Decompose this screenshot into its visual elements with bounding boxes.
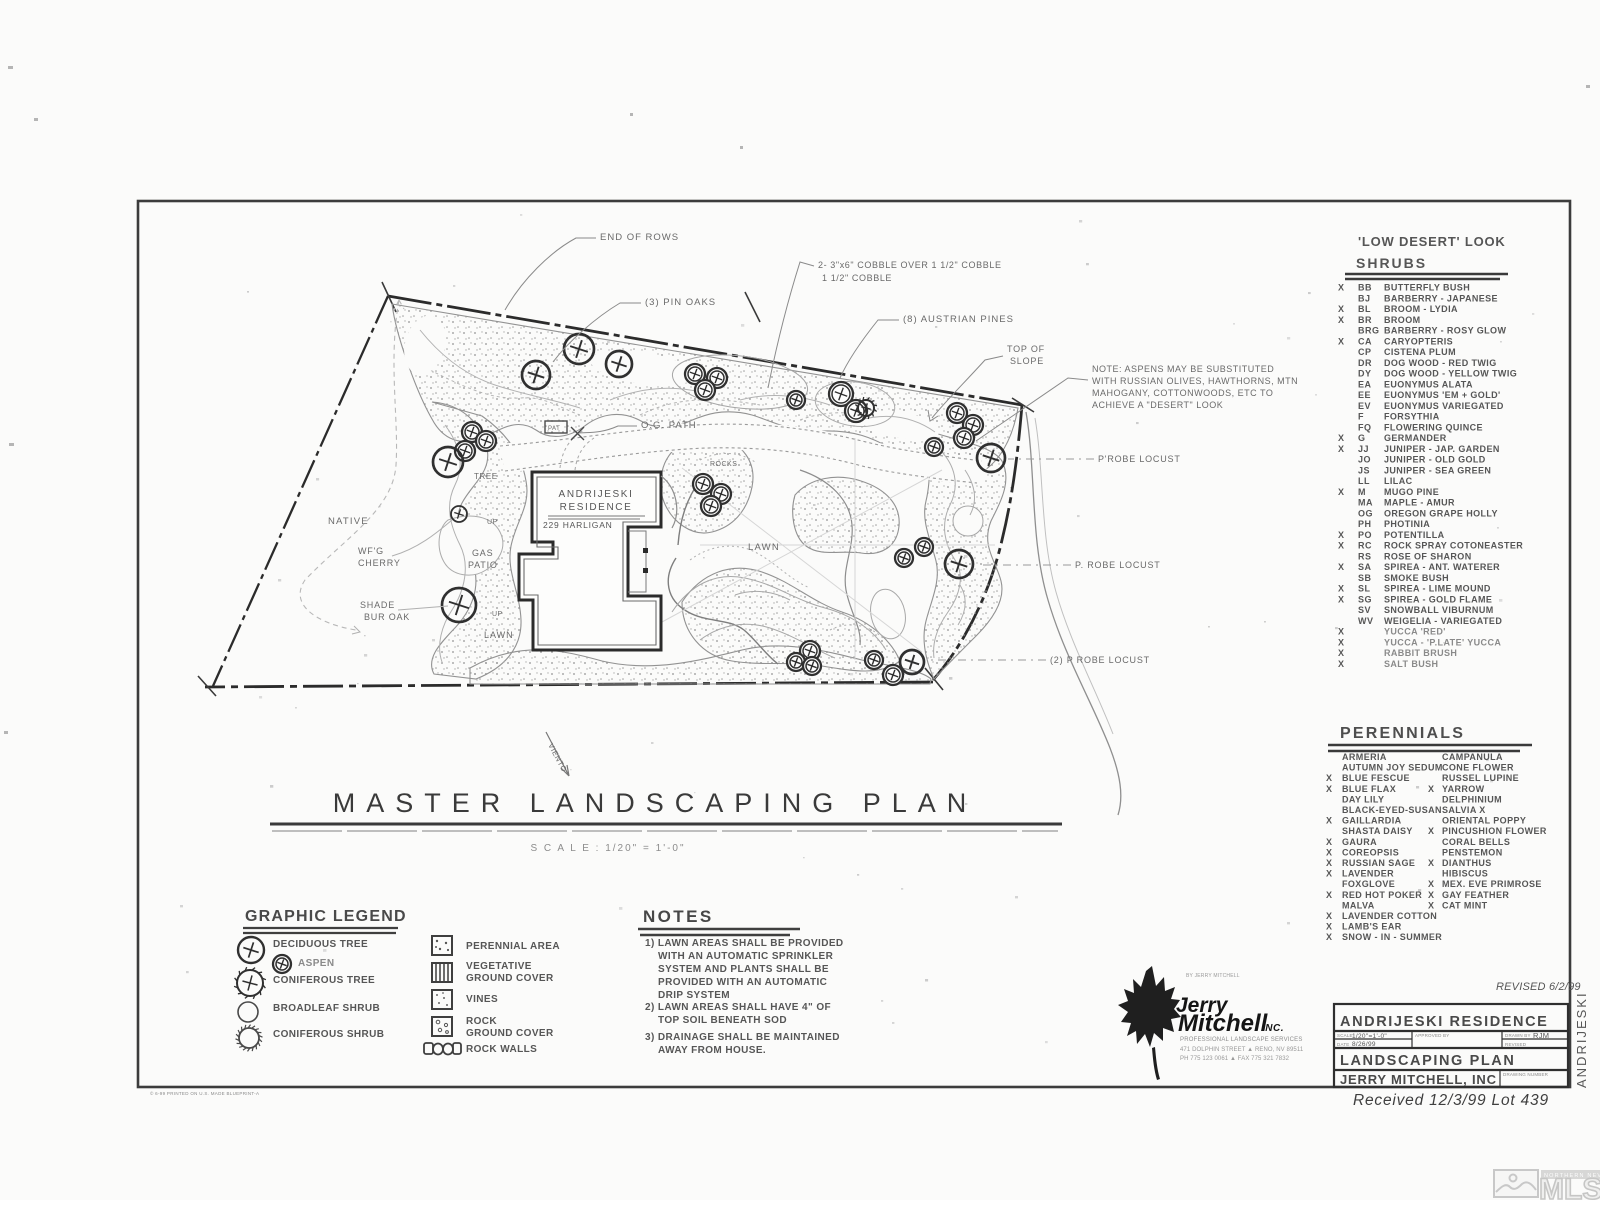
svg-text:MALVA: MALVA bbox=[1342, 900, 1375, 910]
svg-text:PINCUSHION FLOWER: PINCUSHION FLOWER bbox=[1442, 826, 1547, 836]
svg-text:X: X bbox=[1428, 858, 1434, 868]
svg-text:OG: OG bbox=[1358, 508, 1373, 518]
svg-text:FOXGLOVE: FOXGLOVE bbox=[1342, 879, 1395, 889]
svg-text:DIANTHUS: DIANTHUS bbox=[1442, 858, 1492, 868]
svg-text:BRG: BRG bbox=[1358, 326, 1380, 336]
svg-text:M: M bbox=[1358, 487, 1366, 497]
svg-text:X: X bbox=[1338, 530, 1344, 540]
svg-text:RUSSIAN SAGE: RUSSIAN SAGE bbox=[1342, 858, 1415, 868]
svg-text:RUSSEL LUPINE: RUSSEL LUPINE bbox=[1442, 773, 1519, 783]
svg-text:BLUE FLAX: BLUE FLAX bbox=[1342, 784, 1396, 794]
svg-text:BROADLEAF SHRUB: BROADLEAF SHRUB bbox=[273, 1003, 380, 1014]
svg-text:GRAPHIC LEGEND: GRAPHIC LEGEND bbox=[245, 908, 407, 925]
svg-text:SHRUBS: SHRUBS bbox=[1356, 255, 1427, 271]
svg-text:SMOKE BUSH: SMOKE BUSH bbox=[1384, 573, 1449, 583]
svg-text:UP: UP bbox=[492, 611, 503, 618]
svg-text:1/20"=1'-0": 1/20"=1'-0" bbox=[1352, 1033, 1387, 1040]
svg-text:X: X bbox=[1338, 336, 1344, 346]
svg-text:MUGO PINE: MUGO PINE bbox=[1384, 487, 1439, 497]
svg-text:BY JERRY MITCHELL: BY JERRY MITCHELL bbox=[1186, 973, 1240, 979]
svg-text:Mitchell: Mitchell bbox=[1178, 1010, 1269, 1037]
svg-text:DOG WOOD - RED TWIG: DOG WOOD - RED TWIG bbox=[1384, 358, 1497, 368]
svg-text:ROCK WALLS: ROCK WALLS bbox=[466, 1044, 537, 1055]
svg-text:ROCK: ROCK bbox=[466, 1016, 497, 1027]
svg-text:DELPHINIUM: DELPHINIUM bbox=[1442, 794, 1502, 804]
svg-text:MAPLE - AMUR: MAPLE - AMUR bbox=[1384, 498, 1455, 508]
svg-text:X: X bbox=[1326, 773, 1332, 783]
svg-text:TOP SOIL BENEATH SOD: TOP SOIL BENEATH SOD bbox=[658, 1015, 787, 1026]
svg-text:WITH RUSSIAN OLIVES, HAWTHORNS: WITH RUSSIAN OLIVES, HAWTHORNS, MTN bbox=[1092, 376, 1298, 386]
svg-text:2) LAWN AREAS SHALL HAVE 4" OF: 2) LAWN AREAS SHALL HAVE 4" OF bbox=[645, 1002, 831, 1013]
svg-text:DAY LILY: DAY LILY bbox=[1342, 794, 1384, 804]
svg-text:EV: EV bbox=[1358, 401, 1371, 411]
svg-text:POTENTILLA: POTENTILLA bbox=[1384, 530, 1445, 540]
svg-text:X: X bbox=[1338, 541, 1344, 551]
svg-text:PERENNIAL AREA: PERENNIAL AREA bbox=[466, 941, 560, 952]
svg-text:SB: SB bbox=[1358, 573, 1372, 583]
svg-text:X: X bbox=[1326, 784, 1332, 794]
svg-text:SALT BUSH: SALT BUSH bbox=[1384, 659, 1438, 669]
svg-text:EE: EE bbox=[1358, 390, 1371, 400]
svg-text:ROCK SPRAY COTONEASTER: ROCK SPRAY COTONEASTER bbox=[1384, 541, 1523, 551]
svg-text:P'ROBE LOCUST: P'ROBE LOCUST bbox=[1098, 454, 1181, 464]
svg-text:CARYOPTERIS: CARYOPTERIS bbox=[1384, 336, 1453, 346]
svg-text:RESIDENCE: RESIDENCE bbox=[560, 502, 633, 513]
svg-text:JERRY MITCHELL, INC: JERRY MITCHELL, INC bbox=[1340, 1072, 1497, 1087]
svg-text:X: X bbox=[1338, 648, 1344, 658]
svg-text:X: X bbox=[1338, 444, 1344, 454]
svg-text:X: X bbox=[1326, 816, 1332, 826]
svg-text:3) DRAINAGE SHALL BE MAINTAINE: 3) DRAINAGE SHALL BE MAINTAINED bbox=[645, 1032, 840, 1043]
svg-text:CISTENA PLUM: CISTENA PLUM bbox=[1384, 347, 1456, 357]
svg-text:CHERRY: CHERRY bbox=[358, 558, 401, 568]
svg-text:SHADE: SHADE bbox=[360, 600, 395, 610]
svg-text:PHOTINIA: PHOTINIA bbox=[1384, 519, 1430, 529]
svg-text:ROSE OF SHARON: ROSE OF SHARON bbox=[1384, 551, 1472, 561]
svg-text:PENSTEMON: PENSTEMON bbox=[1442, 847, 1503, 857]
svg-text:MLS: MLS bbox=[1539, 1173, 1600, 1200]
svg-text:JJ: JJ bbox=[1358, 444, 1369, 454]
svg-text:VINES: VINES bbox=[466, 994, 498, 1005]
svg-text:SALVIA X: SALVIA X bbox=[1442, 805, 1486, 815]
svg-text:SL: SL bbox=[1358, 584, 1371, 594]
svg-text:2- 3"x6" COBBLE OVER 1 1/2" CO: 2- 3"x6" COBBLE OVER 1 1/2" COBBLE bbox=[818, 260, 1002, 270]
svg-text:TOP OF: TOP OF bbox=[1007, 344, 1045, 354]
svg-text:RED HOT POKER: RED HOT POKER bbox=[1342, 890, 1422, 900]
svg-text:PH: PH bbox=[1358, 519, 1372, 529]
svg-text:REVISED 6/2/99: REVISED 6/2/99 bbox=[1496, 981, 1581, 993]
svg-text:SLOPE: SLOPE bbox=[1010, 356, 1044, 366]
svg-text:ORIENTAL POPPY: ORIENTAL POPPY bbox=[1442, 816, 1526, 826]
svg-text:CA: CA bbox=[1358, 336, 1372, 346]
svg-text:BLUE FESCUE: BLUE FESCUE bbox=[1342, 773, 1410, 783]
svg-text:PAT: PAT bbox=[548, 426, 560, 432]
svg-text:F: F bbox=[1358, 412, 1364, 422]
svg-text:1 1/2" COBBLE: 1 1/2" COBBLE bbox=[822, 273, 892, 283]
svg-text:SNOW - IN - SUMMER: SNOW - IN - SUMMER bbox=[1342, 932, 1442, 942]
svg-text:ANDRIJESKI: ANDRIJESKI bbox=[559, 489, 634, 500]
svg-text:BROOM - LYDIA: BROOM - LYDIA bbox=[1384, 304, 1458, 314]
svg-text:X: X bbox=[1338, 637, 1344, 647]
svg-text:LILAC: LILAC bbox=[1384, 476, 1413, 486]
svg-text:ANDRIJESKI: ANDRIJESKI bbox=[1574, 991, 1589, 1088]
svg-text:X: X bbox=[1338, 433, 1344, 443]
svg-text:SPIREA - LIME MOUND: SPIREA - LIME MOUND bbox=[1384, 584, 1491, 594]
svg-text:229 HARLIGAN: 229 HARLIGAN bbox=[543, 520, 613, 530]
svg-text:FQ: FQ bbox=[1358, 422, 1372, 432]
svg-text:ROCKS: ROCKS bbox=[710, 461, 737, 468]
svg-text:X: X bbox=[1326, 858, 1332, 868]
svg-text:X: X bbox=[1326, 932, 1332, 942]
svg-text:X: X bbox=[1326, 837, 1332, 847]
svg-text:MASTER LANDSCAPING PLAN: MASTER LANDSCAPING PLAN bbox=[333, 788, 978, 818]
svg-text:X: X bbox=[1338, 487, 1344, 497]
svg-text:JUNIPER - JAP. GARDEN: JUNIPER - JAP. GARDEN bbox=[1384, 444, 1500, 454]
svg-text:UP: UP bbox=[487, 519, 498, 526]
svg-text:WITH AN AUTOMATIC SPRINKLER: WITH AN AUTOMATIC SPRINKLER bbox=[658, 951, 834, 962]
svg-text:SV: SV bbox=[1358, 605, 1371, 615]
svg-text:S C A L E : 1/20" = 1'-0": S C A L E : 1/20" = 1'-0" bbox=[530, 843, 685, 854]
svg-text:DRAWING NUMBER: DRAWING NUMBER bbox=[1503, 1072, 1549, 1077]
svg-text:PROVIDED WITH AN AUTOMATIC: PROVIDED WITH AN AUTOMATIC bbox=[658, 977, 827, 988]
svg-text:GAURA: GAURA bbox=[1342, 837, 1377, 847]
svg-text:GROUND COVER: GROUND COVER bbox=[466, 973, 554, 984]
svg-text:BUTTERFLY BUSH: BUTTERFLY BUSH bbox=[1384, 283, 1470, 293]
svg-text:BB: BB bbox=[1358, 283, 1372, 293]
svg-text:AWAY FROM HOUSE.: AWAY FROM HOUSE. bbox=[658, 1045, 766, 1056]
svg-text:CORAL BELLS: CORAL BELLS bbox=[1442, 837, 1510, 847]
svg-text:X: X bbox=[1326, 869, 1332, 879]
svg-text:PATIO: PATIO bbox=[468, 560, 498, 570]
svg-text:BROOM: BROOM bbox=[1384, 315, 1421, 325]
svg-text:DR: DR bbox=[1358, 358, 1372, 368]
svg-text:X: X bbox=[1326, 922, 1332, 932]
svg-text:VEGETATIVE: VEGETATIVE bbox=[466, 961, 532, 972]
svg-text:BARBERRY - JAPANESE: BARBERRY - JAPANESE bbox=[1384, 293, 1498, 303]
svg-text:TREE: TREE bbox=[474, 472, 498, 481]
svg-text:SNOWBALL VIBURNUM: SNOWBALL VIBURNUM bbox=[1384, 605, 1494, 615]
svg-text:O.G. PATH: O.G. PATH bbox=[641, 420, 697, 431]
svg-text:JUNIPER - OLD GOLD: JUNIPER - OLD GOLD bbox=[1384, 455, 1486, 465]
svg-text:ASPEN: ASPEN bbox=[298, 958, 334, 969]
svg-text:RJM: RJM bbox=[1533, 1031, 1549, 1040]
svg-text:'LOW DESERT' LOOK: 'LOW DESERT' LOOK bbox=[1358, 234, 1506, 249]
svg-text:SA: SA bbox=[1358, 562, 1372, 572]
svg-text:WV: WV bbox=[1358, 616, 1374, 626]
svg-text:BUR OAK: BUR OAK bbox=[364, 612, 410, 622]
svg-text:DOG WOOD - YELLOW TWIG: DOG WOOD - YELLOW TWIG bbox=[1384, 369, 1517, 379]
svg-text:X: X bbox=[1428, 826, 1434, 836]
svg-text:BL: BL bbox=[1358, 304, 1371, 314]
svg-text:PERENNIALS: PERENNIALS bbox=[1340, 725, 1465, 742]
svg-text:X: X bbox=[1338, 584, 1344, 594]
svg-text:© 6-99 PRINTED ON U.S. MADE: © 6-99 PRINTED ON U.S. MADE BLUEPRINT-A bbox=[150, 1090, 259, 1096]
svg-text:LAWN: LAWN bbox=[484, 630, 514, 640]
svg-text:X: X bbox=[1428, 784, 1434, 794]
svg-text:YUCCA 'RED': YUCCA 'RED' bbox=[1384, 627, 1446, 637]
svg-text:FORSYTHIA: FORSYTHIA bbox=[1384, 412, 1440, 422]
svg-text:CONIFEROUS SHRUB: CONIFEROUS SHRUB bbox=[273, 1029, 384, 1040]
svg-text:NOTES: NOTES bbox=[643, 907, 714, 926]
svg-text:X: X bbox=[1326, 911, 1332, 921]
svg-text:471 DOLPHIN STREET ▲ RENO, NV: 471 DOLPHIN STREET ▲ RENO, NV 89511 bbox=[1180, 1047, 1304, 1053]
svg-text:YARROW: YARROW bbox=[1442, 784, 1485, 794]
svg-text:DRAWN BY: DRAWN BY bbox=[1505, 1033, 1531, 1038]
svg-text:X: X bbox=[1338, 594, 1344, 604]
svg-text:GAS: GAS bbox=[472, 548, 493, 558]
svg-text:GROUND COVER: GROUND COVER bbox=[466, 1028, 554, 1039]
svg-text:PROFESSIONAL LANDSCAPE SERVICE: PROFESSIONAL LANDSCAPE SERVICES bbox=[1180, 1037, 1303, 1043]
svg-text:BJ: BJ bbox=[1358, 293, 1371, 303]
svg-text:EUONYMUS ALATA: EUONYMUS ALATA bbox=[1384, 379, 1473, 389]
svg-text:G: G bbox=[1358, 433, 1366, 443]
svg-text:DECIDUOUS TREE: DECIDUOUS TREE bbox=[273, 939, 368, 950]
svg-text:END OF ROWS: END OF ROWS bbox=[600, 232, 679, 243]
svg-text:ACHIEVE A "DESERT" LOOK: ACHIEVE A "DESERT" LOOK bbox=[1092, 400, 1223, 410]
svg-text:CONIFEROUS TREE: CONIFEROUS TREE bbox=[273, 975, 375, 986]
svg-text:INC.: INC. bbox=[1262, 1023, 1284, 1034]
svg-text:GAY FEATHER: GAY FEATHER bbox=[1442, 890, 1509, 900]
svg-text:X: X bbox=[1338, 283, 1344, 293]
svg-text:JO: JO bbox=[1358, 455, 1371, 465]
svg-text:JS: JS bbox=[1358, 465, 1370, 475]
svg-text:MEX. EVE PRIMROSE: MEX. EVE PRIMROSE bbox=[1442, 879, 1542, 889]
svg-text:BR: BR bbox=[1358, 315, 1372, 325]
svg-text:EUONYMUS 'EM + GOLD': EUONYMUS 'EM + GOLD' bbox=[1384, 390, 1501, 400]
svg-text:SPIREA - ANT. WATERER: SPIREA - ANT. WATERER bbox=[1384, 562, 1500, 572]
svg-text:X: X bbox=[1428, 900, 1434, 910]
svg-text:SPIREA - GOLD FLAME: SPIREA - GOLD FLAME bbox=[1384, 594, 1492, 604]
svg-text:X: X bbox=[1338, 627, 1344, 637]
svg-text:LAVENDER: LAVENDER bbox=[1342, 869, 1394, 879]
svg-text:GAILLARDIA: GAILLARDIA bbox=[1342, 816, 1402, 826]
svg-text:JUNIPER - SEA GREEN: JUNIPER - SEA GREEN bbox=[1384, 465, 1491, 475]
svg-text:REVISED: REVISED bbox=[1505, 1042, 1527, 1047]
svg-text:RABBIT BRUSH: RABBIT BRUSH bbox=[1384, 648, 1457, 658]
svg-text:LANDSCAPING PLAN: LANDSCAPING PLAN bbox=[1340, 1053, 1515, 1069]
svg-text:X: X bbox=[1338, 659, 1344, 669]
svg-text:8/26/99: 8/26/99 bbox=[1352, 1041, 1376, 1048]
svg-text:(8) AUSTRIAN PINES: (8) AUSTRIAN PINES bbox=[903, 314, 1014, 325]
svg-text:EUONYMUS VARIEGATED: EUONYMUS VARIEGATED bbox=[1384, 401, 1504, 411]
svg-text:AUTUMN JOY SEDUM: AUTUMN JOY SEDUM bbox=[1342, 763, 1443, 773]
svg-text:OREGON GRAPE HOLLY: OREGON GRAPE HOLLY bbox=[1384, 508, 1498, 518]
svg-text:EA: EA bbox=[1358, 379, 1372, 389]
svg-text:CP: CP bbox=[1358, 347, 1372, 357]
svg-text:SHASTA DAISY: SHASTA DAISY bbox=[1342, 826, 1413, 836]
svg-text:WF'G: WF'G bbox=[358, 546, 384, 556]
svg-text:LAWN: LAWN bbox=[748, 542, 780, 553]
svg-text:CAT MINT: CAT MINT bbox=[1442, 900, 1488, 910]
svg-text:X: X bbox=[1338, 315, 1344, 325]
svg-text:HIBISCUS: HIBISCUS bbox=[1442, 869, 1488, 879]
svg-text:DY: DY bbox=[1358, 369, 1372, 379]
svg-text:GERMANDER: GERMANDER bbox=[1384, 433, 1447, 443]
svg-text:YUCCA - 'P.LATE' YUCCA: YUCCA - 'P.LATE' YUCCA bbox=[1384, 637, 1501, 647]
svg-text:(2) P ROBE LOCUST: (2) P ROBE LOCUST bbox=[1050, 655, 1150, 665]
svg-text:CONE FLOWER: CONE FLOWER bbox=[1442, 763, 1514, 773]
svg-text:DRIP SYSTEM: DRIP SYSTEM bbox=[658, 990, 730, 1001]
svg-text:MAHOGANY, COTTONWOODS, ETC TO: MAHOGANY, COTTONWOODS, ETC TO bbox=[1092, 388, 1273, 398]
svg-text:SCALE: SCALE bbox=[1337, 1033, 1353, 1038]
svg-text:X: X bbox=[1326, 847, 1332, 857]
svg-text:PH 775 123 0061 ▲ FAX 775 321: PH 775 123 0061 ▲ FAX 775 321 7832 bbox=[1180, 1056, 1290, 1062]
svg-text:1) LAWN AREAS SHALL BE PROVIDE: 1) LAWN AREAS SHALL BE PROVIDED bbox=[645, 938, 844, 949]
svg-text:DATE: DATE bbox=[1337, 1042, 1349, 1047]
svg-text:SYSTEM AND PLANTS SHALL BE: SYSTEM AND PLANTS SHALL BE bbox=[658, 964, 829, 975]
svg-text:MA: MA bbox=[1358, 498, 1373, 508]
svg-text:BLACK-EYED-SUSAN: BLACK-EYED-SUSAN bbox=[1342, 805, 1442, 815]
svg-text:P. ROBE LOCUST: P. ROBE LOCUST bbox=[1075, 560, 1161, 570]
svg-text:FLOWERING QUINCE: FLOWERING QUINCE bbox=[1384, 422, 1483, 432]
svg-text:APPROVED BY: APPROVED BY bbox=[1415, 1033, 1449, 1038]
svg-text:LL: LL bbox=[1358, 476, 1370, 486]
svg-text:X: X bbox=[1338, 304, 1344, 314]
svg-text:LAMB'S EAR: LAMB'S EAR bbox=[1342, 922, 1402, 932]
svg-text:RC: RC bbox=[1358, 541, 1372, 551]
svg-text:Received 12/3/99 Lot 439: Received 12/3/99 Lot 439 bbox=[1353, 1092, 1549, 1109]
svg-text:X: X bbox=[1326, 890, 1332, 900]
svg-text:BARBERRY - ROSY GLOW: BARBERRY - ROSY GLOW bbox=[1384, 326, 1506, 336]
svg-text:(3) PIN OAKS: (3) PIN OAKS bbox=[645, 297, 716, 308]
svg-text:CAMPANULA: CAMPANULA bbox=[1442, 752, 1503, 762]
svg-text:X: X bbox=[1428, 890, 1434, 900]
svg-text:WEIGELIA - VARIEGATED: WEIGELIA - VARIEGATED bbox=[1384, 616, 1502, 626]
svg-text:X: X bbox=[1338, 562, 1344, 572]
svg-text:COREOPSIS: COREOPSIS bbox=[1342, 847, 1399, 857]
svg-text:LAVENDER COTTON: LAVENDER COTTON bbox=[1342, 911, 1437, 921]
svg-text:RS: RS bbox=[1358, 551, 1372, 561]
svg-text:NOTE: ASPENS MAY BE SUBSTITUTE: NOTE: ASPENS MAY BE SUBSTITUTED bbox=[1092, 364, 1274, 374]
svg-text:PO: PO bbox=[1358, 530, 1372, 540]
svg-text:ARMERIA: ARMERIA bbox=[1342, 752, 1387, 762]
svg-text:ANDRIJESKI RESIDENCE: ANDRIJESKI RESIDENCE bbox=[1340, 1014, 1548, 1030]
svg-text:X: X bbox=[1428, 879, 1434, 889]
svg-text:SG: SG bbox=[1358, 594, 1372, 604]
